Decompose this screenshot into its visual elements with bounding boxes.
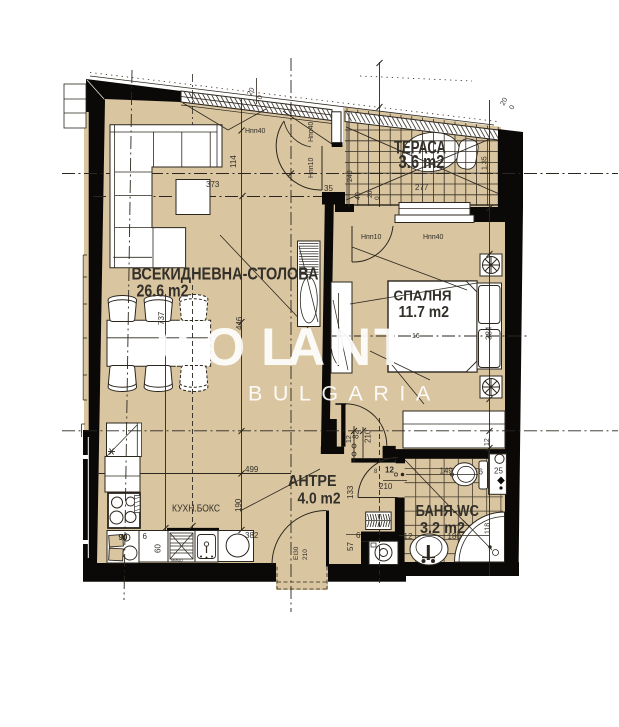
svg-text:4.0 m2: 4.0 m2: [298, 491, 341, 508]
svg-text:АНТРЕ: АНТРЕ: [288, 473, 337, 490]
svg-text:210: 210: [379, 482, 393, 491]
svg-text:384: 384: [485, 326, 494, 340]
svg-text:12: 12: [404, 532, 413, 541]
svg-text:БАНЯ-WC: БАНЯ-WC: [416, 503, 480, 520]
svg-text:60: 60: [154, 544, 163, 553]
svg-text:210: 210: [302, 549, 309, 560]
svg-text:3.6 m2: 3.6 m2: [399, 152, 445, 172]
svg-text:499: 499: [245, 465, 259, 474]
svg-text:МИВО: МИВО: [171, 558, 183, 563]
svg-text:ЕI30: ЕI30: [293, 546, 300, 560]
svg-text:12: 12: [484, 438, 491, 446]
svg-text:210: 210: [364, 429, 373, 443]
svg-text:149: 149: [440, 467, 454, 476]
svg-text:25: 25: [494, 467, 503, 476]
svg-text:V: V: [155, 318, 190, 377]
svg-text:180: 180: [448, 532, 462, 541]
svg-text:12: 12: [385, 466, 394, 475]
svg-text:90: 90: [119, 533, 128, 542]
svg-text:82: 82: [352, 430, 361, 439]
svg-text:373: 373: [206, 180, 220, 189]
svg-text:190: 190: [234, 498, 243, 512]
svg-text:133: 133: [346, 485, 355, 499]
svg-text:240: 240: [347, 170, 354, 182]
svg-text:Hпп40: Hпп40: [423, 234, 444, 241]
svg-text:277: 277: [415, 183, 429, 192]
svg-text:A: A: [287, 318, 325, 377]
svg-text:118: 118: [485, 523, 492, 534]
svg-text:6: 6: [479, 468, 484, 477]
svg-text:57: 57: [346, 542, 355, 551]
svg-text:Hпп10: Hпп10: [308, 157, 315, 178]
svg-text:N: N: [333, 318, 371, 377]
svg-text:BULGARIA: BULGARIA: [248, 382, 441, 406]
svg-text:6: 6: [356, 531, 361, 540]
svg-text:T: T: [374, 318, 406, 377]
svg-text:1.35: 1.35: [482, 156, 489, 170]
svg-text:Hпп40: Hпп40: [308, 121, 315, 142]
svg-text:382: 382: [245, 531, 259, 540]
svg-text:40: 40: [355, 192, 362, 200]
svg-text:6: 6: [143, 532, 148, 541]
svg-text:O: O: [204, 318, 245, 377]
svg-text:16: 16: [412, 333, 420, 340]
svg-text:Hпп10: Hпп10: [361, 234, 382, 241]
svg-text:26.6 m2: 26.6 m2: [137, 281, 189, 301]
svg-text:114: 114: [229, 155, 238, 168]
svg-text:0: 0: [374, 196, 381, 200]
svg-text:35: 35: [324, 184, 333, 193]
svg-text:СПАЛНЯ: СПАЛНЯ: [394, 288, 452, 305]
svg-text:Hпп40: Hпп40: [245, 128, 266, 135]
svg-text:КУХН.БОКС: КУХН.БОКС: [172, 504, 220, 515]
svg-text:20: 20: [367, 190, 374, 198]
